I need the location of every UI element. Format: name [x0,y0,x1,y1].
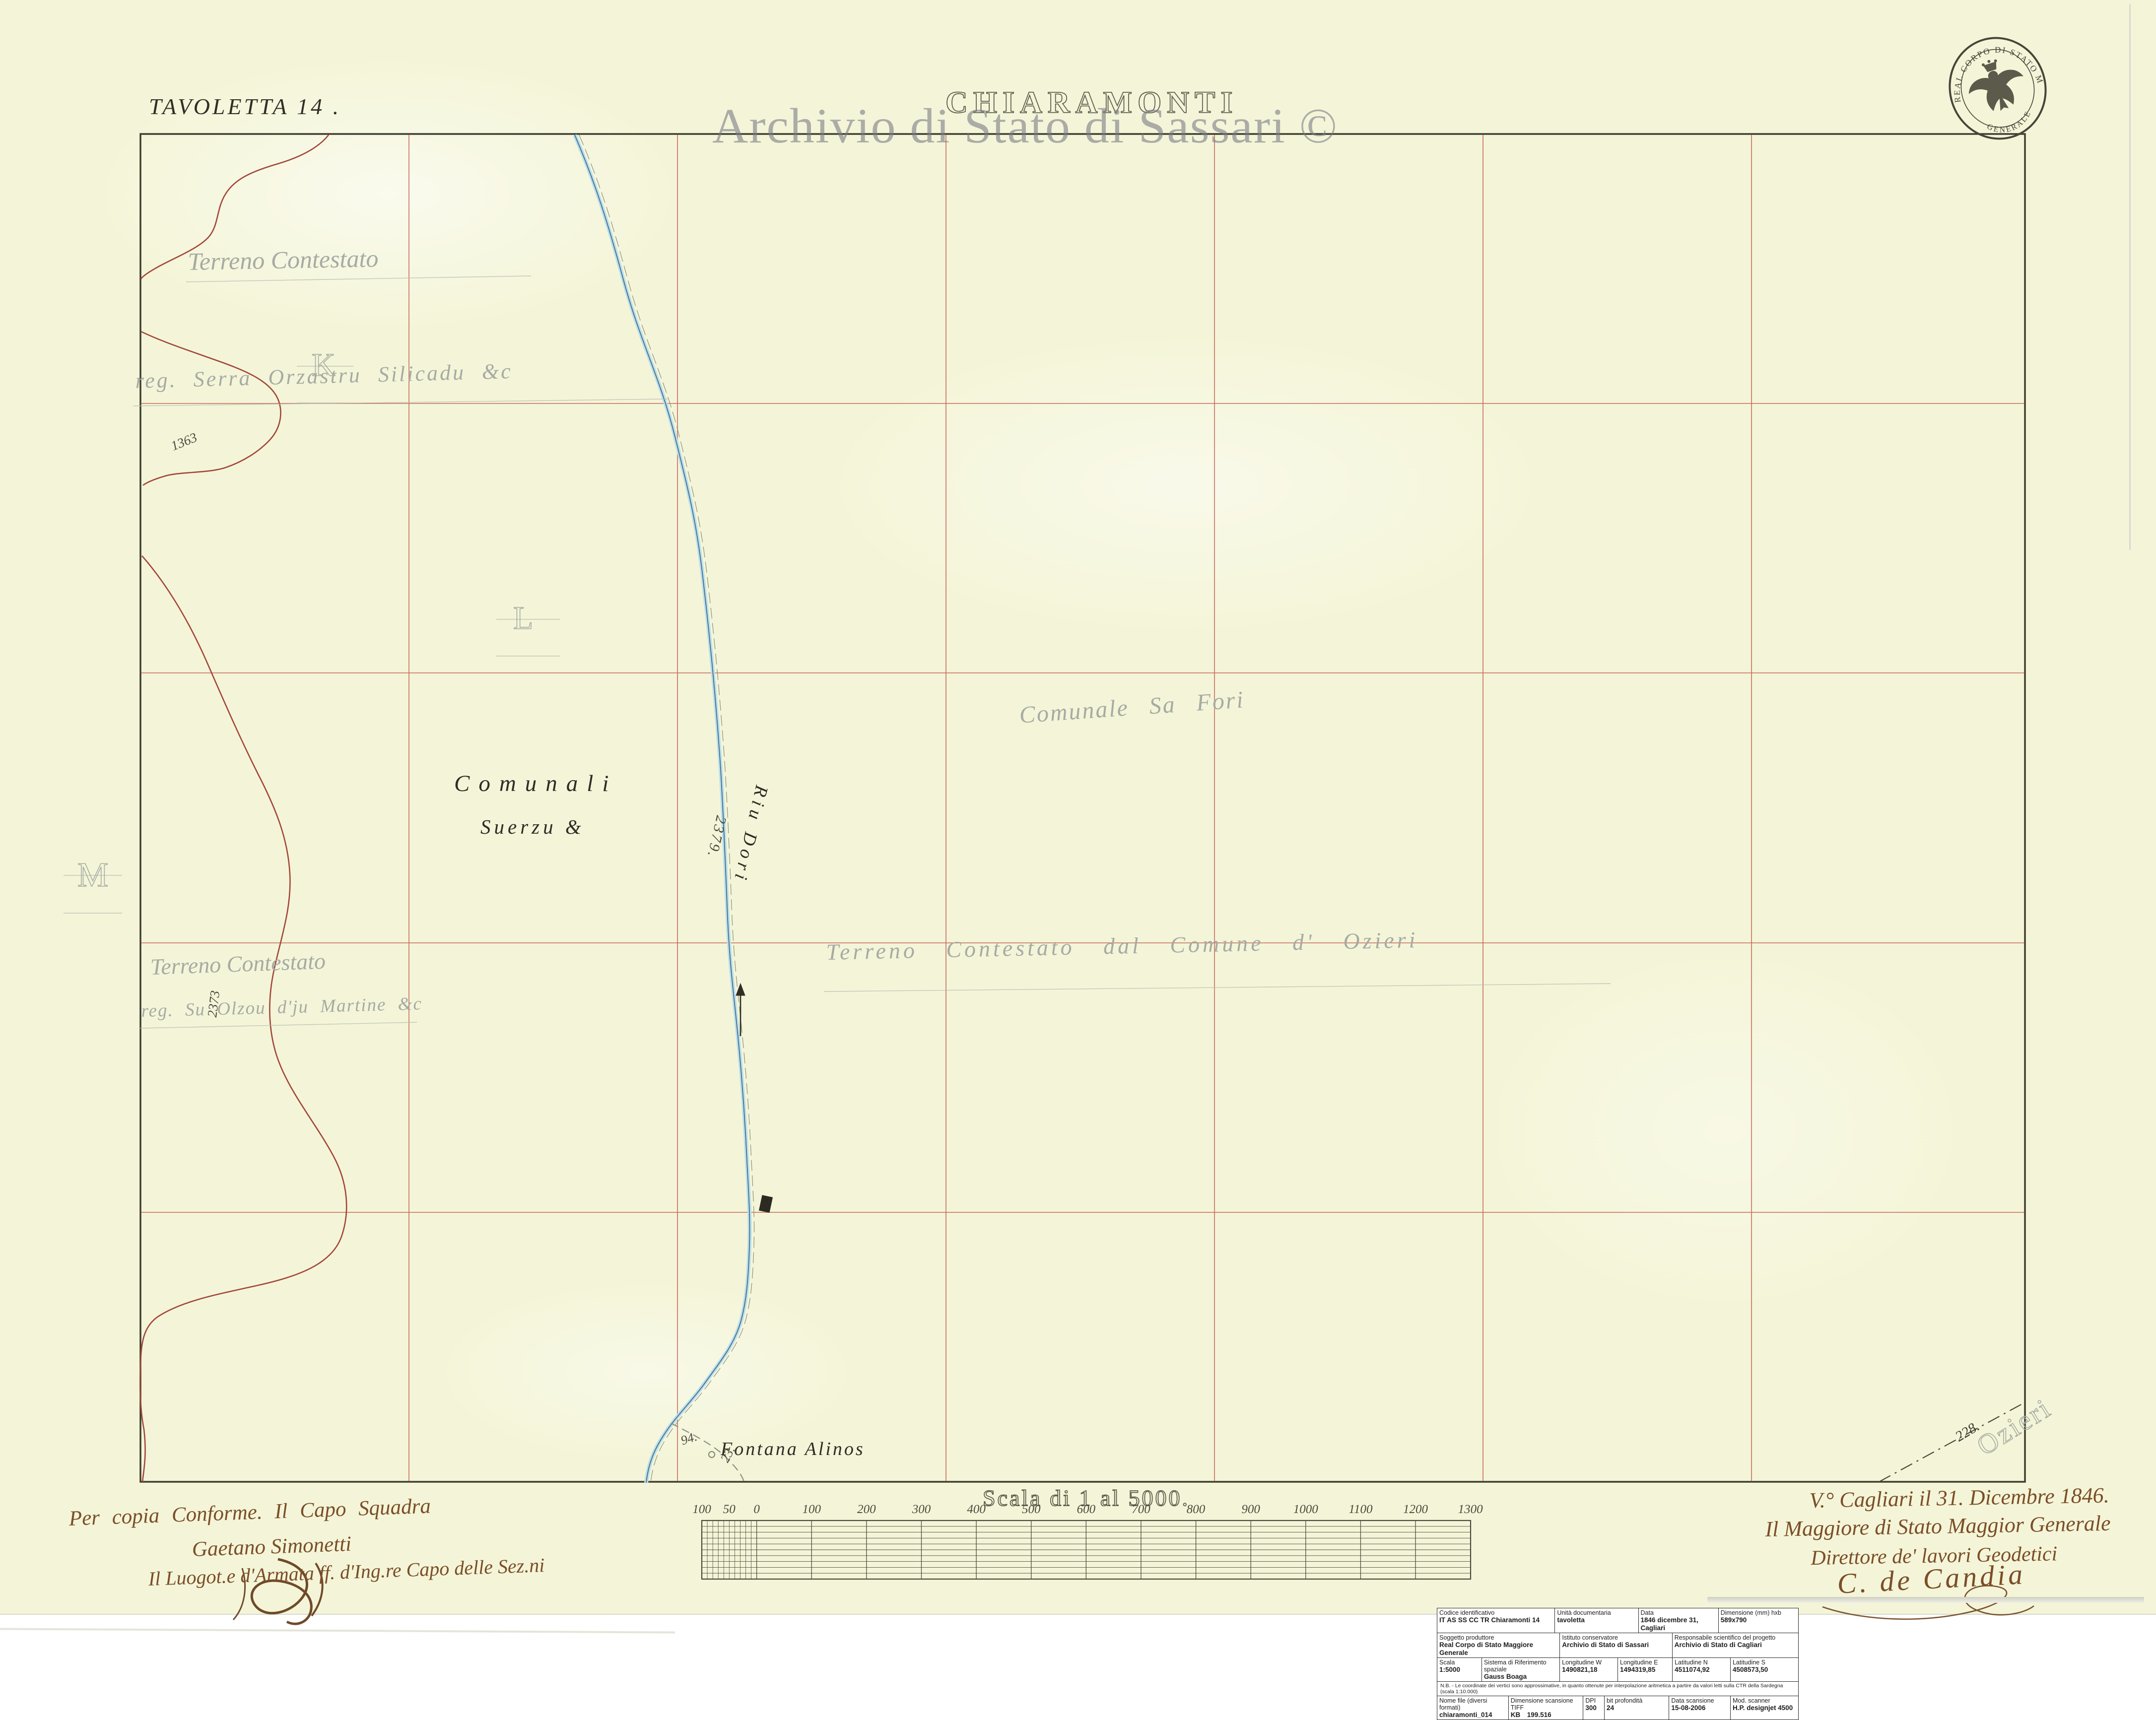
building-symbol [759,1195,773,1213]
svg-text:GENERALE: GENERALE [1983,107,2037,140]
scale-tick-label: 600 [1077,1503,1096,1517]
scale-tick-label: 300 [912,1503,931,1517]
survey-grid [141,135,2024,1481]
pencil-letter-k: K [312,346,336,384]
metadata-cell: Codice identificativoIT AS SS CC TR Chia… [1437,1608,1555,1633]
map-frame [140,134,2025,1482]
metadata-cell-value: 4511074,92 [1675,1666,1728,1674]
territory-boundary-line [140,135,346,1482]
spring-symbol [709,1452,715,1457]
metadata-note: N.B. - Le coordinate dei vertici sono ap… [1437,1682,1798,1696]
metadata-cell-label: DPI [1585,1697,1602,1704]
metadata-cell-label: Unità documentaria [1557,1609,1636,1616]
metadata-cell-value: 15-08-2006 [1671,1704,1728,1712]
metadata-cell: Istituto conservatoreArchivio di Stato d… [1560,1633,1672,1657]
metadata-table-row: Soggetto produttoreReal Corpo di Stato M… [1437,1633,1798,1658]
metadata-cell-value: tavoletta [1557,1616,1636,1624]
pencil-letter-l: L [513,599,533,637]
metadata-cell-value: 300 [1585,1704,1602,1712]
sheet-label: TAVOLETTA 14 . [149,93,341,120]
metadata-cell: Scala1:5000 [1437,1658,1482,1681]
metadata-cell: Data1846 dicembre 31, Cagliari [1639,1608,1719,1633]
metadata-cell-value: Archivio di Stato di Sassari [1562,1641,1670,1649]
metadata-cell-label: Latitudine N [1675,1659,1728,1666]
scale-tick-label: 700 [1132,1503,1150,1517]
scale-tick-label: 0 [753,1503,760,1517]
metadata-cell-label: Scala [1439,1659,1480,1666]
metadata-cell-value: 1846 dicembre 31, Cagliari [1641,1616,1716,1632]
metadata-cell-value: 1:5000 [1439,1666,1480,1674]
metadata-cell-value: 1494319,85 [1620,1666,1670,1674]
metadata-cell: Longitudine W1490821,18 [1560,1658,1618,1681]
metadata-cell-label: Sistema di Riferimento spaziale [1484,1659,1557,1673]
scale-tick-label: 100 [692,1503,711,1517]
metadata-cell-value: 24 [1607,1704,1667,1712]
metadata-cell-value: Gauss Boaga [1484,1673,1557,1681]
metadata-cell-label: Codice identificativo [1439,1609,1552,1616]
metadata-cell-label: bit profondità [1607,1697,1667,1704]
metadata-cell: Soggetto produttoreReal Corpo di Stato M… [1437,1633,1560,1657]
scale-tick-label: 900 [1241,1503,1260,1517]
paper-edge-shadow [1707,1597,2144,1603]
scale-tick-label: 1300 [1458,1503,1483,1517]
metadata-cell: Data scansione15-08-2006 [1669,1696,1731,1720]
scale-tick-label: 1200 [1403,1503,1428,1517]
metadata-cell-value: IT AS SS CC TR Chiaramonti 14 [1439,1616,1552,1624]
metadata-cell: Mod. scannerH.P. designjet 4500 [1731,1696,1798,1720]
metadata-cell: Sistema di Riferimento spazialeGauss Boa… [1482,1658,1560,1681]
scale-tick-label: 1000 [1293,1503,1318,1517]
metadata-cell-label: Data scansione [1671,1697,1728,1704]
metadata-cell-label: Longitudine E [1620,1659,1670,1666]
scale-tick-label: 50 [723,1503,736,1517]
pencil-letter-m: M [77,856,108,895]
metadata-cell-value: Archivio di Stato di Cagliari [1675,1641,1796,1649]
scale-tick-label: 1100 [1348,1503,1372,1517]
metadata-cell-label: Soggetto produttore [1439,1634,1557,1641]
metadata-cell-value: 4508573,50 [1733,1666,1796,1674]
metadata-cell-value: 1490821,18 [1562,1666,1616,1674]
label-elevation-2373: 2373 [204,990,223,1018]
scale-tick-labels: 1005001002003004005006007008009001000110… [702,1503,1476,1519]
metadata-cell-label: Istituto conservatore [1562,1634,1670,1641]
metadata-cell: Unità documentariatavoletta [1555,1608,1638,1633]
metadata-table-row: Nome file (diversi formati)chiaramonti_0… [1437,1696,1798,1720]
label-comunali: Comunali [454,770,617,797]
metadata-cell-label: Responsabile scientifico del progetto [1675,1634,1796,1641]
scale-tick-label: 100 [802,1503,821,1517]
stamp-text-bottom: GENERALE [1983,107,2037,140]
metadata-table-row: N.B. - Le coordinate dei vertici sono ap… [1437,1682,1798,1696]
metadata-cell: Longitudine E1494319,85 [1618,1658,1673,1681]
metadata-cell-value: 589x790 [1721,1616,1796,1624]
archive-watermark: Archivio di Stato di Sassari © [712,97,1338,154]
metadata-cell-value: chiaramonti_014 [1439,1711,1506,1719]
scale-tick-label: 800 [1187,1503,1206,1517]
official-stamp: REAL CORPO DI STATO MAGGIORE GENERALE [1937,25,2059,151]
river [575,135,754,1483]
metadata-cell: bit profondità24 [1605,1696,1669,1720]
metadata-cell-label: Longitudine W [1562,1659,1616,1666]
metadata-cell: Latitudine N4511074,92 [1673,1658,1731,1681]
label-suerzu: Suerzu & [480,815,585,839]
metadata-cell-label: Nome file (diversi formati) [1439,1697,1506,1711]
metadata-cell: Nome file (diversi formati)chiaramonti_0… [1437,1696,1509,1720]
metadata-cell: Dimensione scansione TIFFKB 199.516 [1509,1696,1584,1720]
metadata-cell-value: KB 199.516 [1511,1711,1581,1719]
metadata-cell: Dimensione (mm) hxb589x790 [1719,1608,1798,1633]
scale-bar [702,1521,1471,1579]
metadata-cell: Latitudine S4508573,50 [1731,1658,1798,1681]
dedication-line-1: V.° Cagliari il 31. Dicembre 1846. [1809,1482,2109,1513]
metadata-cell-value: H.P. designjet 4500 [1733,1704,1796,1712]
scale-tick-label: 500 [1022,1503,1041,1517]
metadata-cell-label: Data [1641,1609,1716,1616]
paper-right-edge [2129,4,2131,550]
scale-tick-label: 400 [967,1503,986,1517]
metadata-table-row: Codice identificativoIT AS SS CC TR Chia… [1437,1608,1798,1633]
metadata-cell-label: Mod. scanner [1733,1697,1796,1704]
metadata-cell: Responsabile scientifico del progettoArc… [1673,1633,1798,1657]
metadata-table-row: Scala1:5000Sistema di Riferimento spazia… [1437,1658,1798,1682]
metadata-cell-label: Latitudine S [1733,1659,1796,1666]
metadata-table: Codice identificativoIT AS SS CC TR Chia… [1437,1608,1799,1720]
metadata-cell-label: Dimensione scansione TIFF [1511,1697,1581,1711]
pencil-note-nw-1: Terreno Contestato [188,244,379,276]
label-fontana-alinos: Fontana Alinos [721,1438,865,1460]
metadata-cell: DPI300 [1583,1696,1605,1720]
scale-tick-label: 200 [857,1503,876,1517]
metadata-cell-label: Dimensione (mm) hxb [1721,1609,1796,1616]
metadata-cell-value: Real Corpo di Stato Maggiore Generale [1439,1641,1557,1657]
